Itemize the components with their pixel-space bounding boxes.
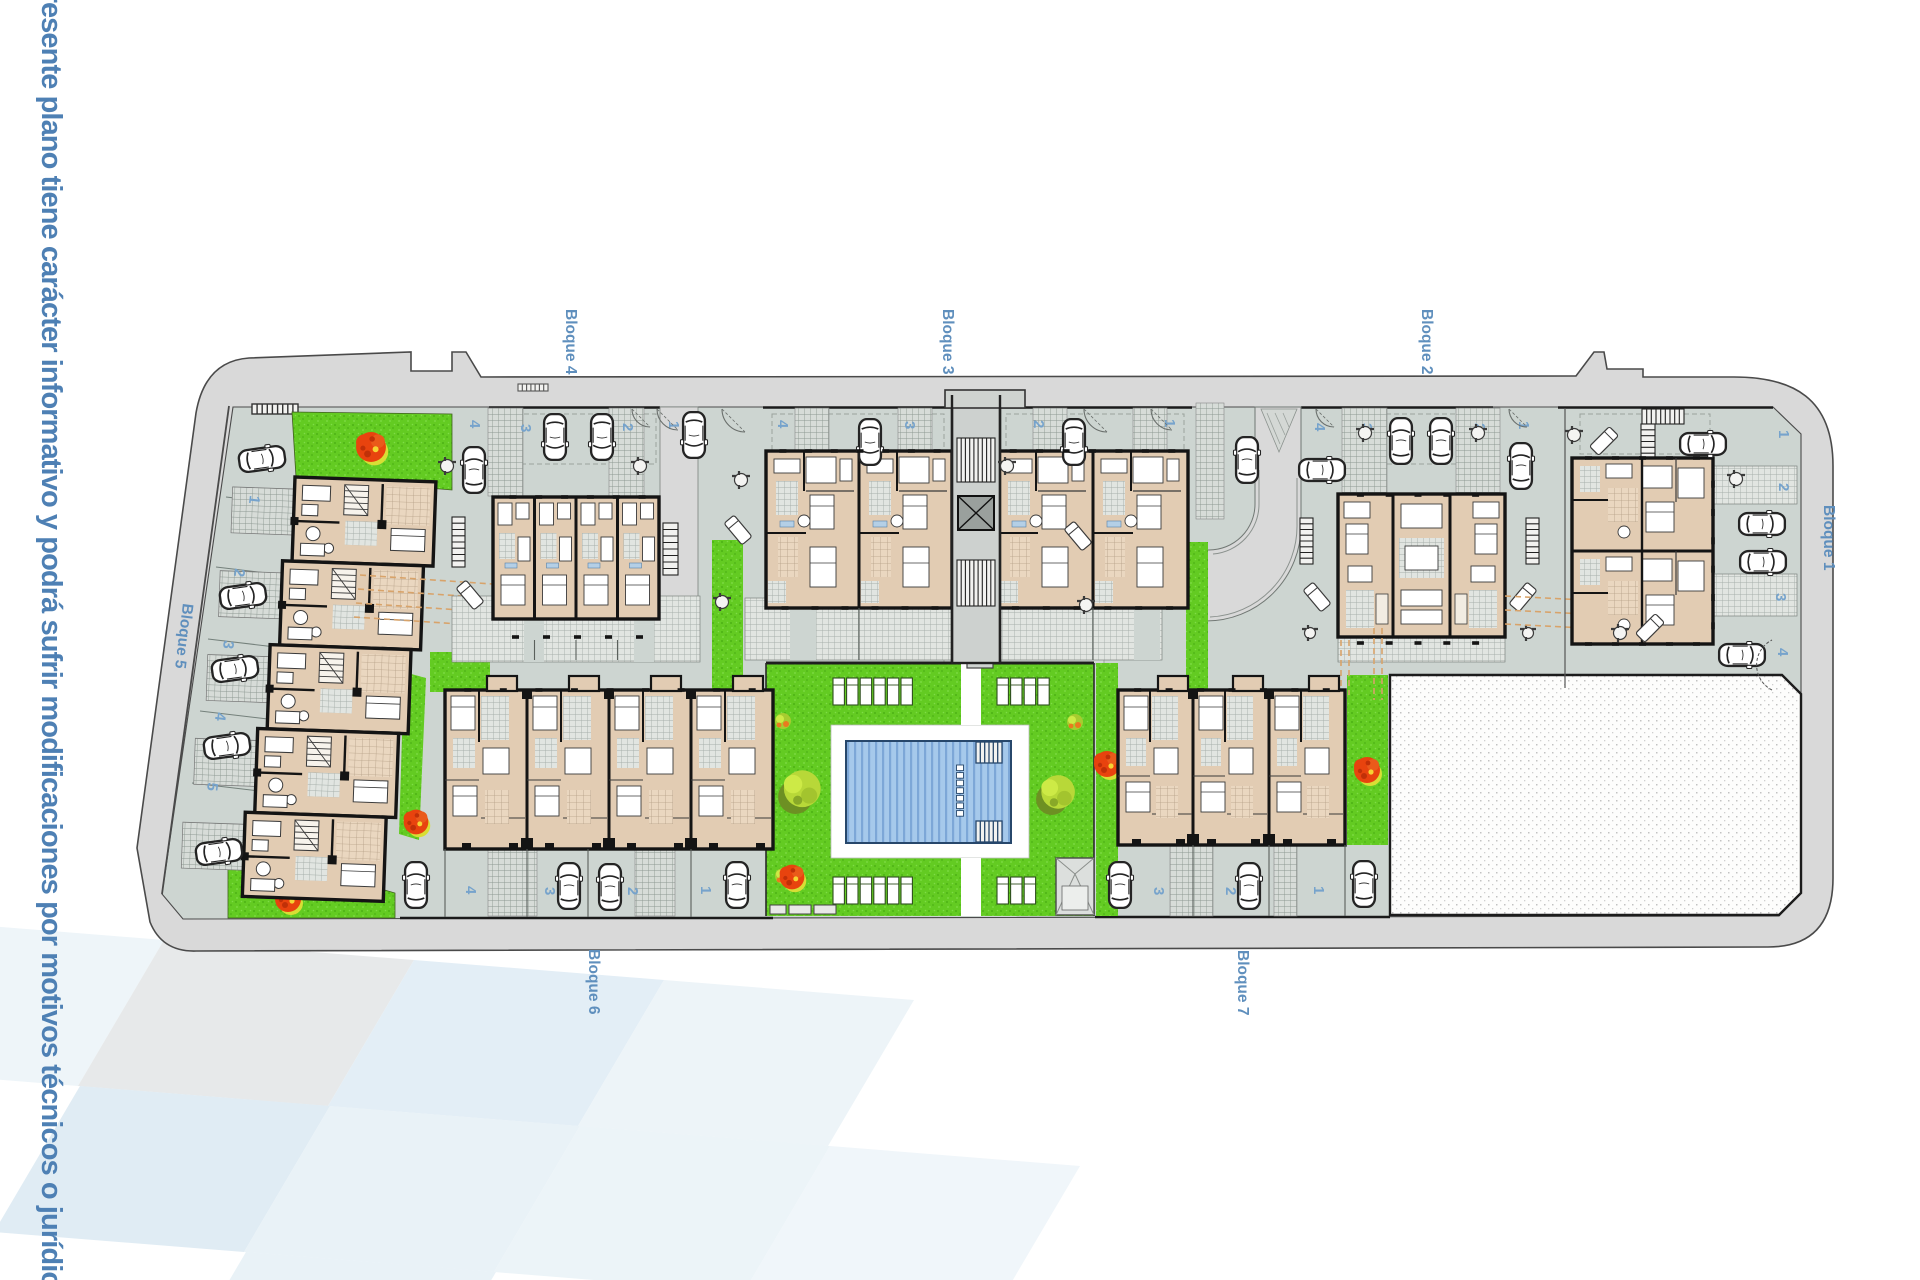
svg-text:2: 2 xyxy=(619,423,636,431)
svg-text:3: 3 xyxy=(517,424,534,432)
svg-text:4: 4 xyxy=(774,420,791,429)
svg-text:4: 4 xyxy=(1774,648,1791,657)
svg-text:4: 4 xyxy=(466,420,483,429)
svg-text:3: 3 xyxy=(1150,887,1167,895)
svg-text:1: 1 xyxy=(1161,419,1178,427)
svg-text:3: 3 xyxy=(901,421,918,429)
svg-text:Bloque 3: Bloque 3 xyxy=(939,309,956,375)
svg-text:El presente plano tiene caráct: El presente plano tiene carácter informa… xyxy=(35,0,67,1280)
svg-text:2: 2 xyxy=(1222,887,1239,895)
svg-text:2: 2 xyxy=(1030,420,1047,428)
svg-text:1: 1 xyxy=(1310,886,1327,894)
svg-text:3: 3 xyxy=(541,887,558,895)
svg-text:1: 1 xyxy=(1775,430,1792,438)
svg-text:Bloque 2: Bloque 2 xyxy=(1418,309,1435,374)
svg-text:2: 2 xyxy=(1775,483,1792,491)
svg-text:1: 1 xyxy=(697,886,714,894)
svg-text:Bloque 6: Bloque 6 xyxy=(585,949,602,1015)
svg-text:1: 1 xyxy=(1515,421,1532,429)
svg-text:3: 3 xyxy=(1772,593,1789,601)
svg-text:4: 4 xyxy=(462,886,479,895)
svg-text:1: 1 xyxy=(665,421,682,429)
svg-text:Bloque 7: Bloque 7 xyxy=(1234,950,1251,1015)
svg-text:2: 2 xyxy=(624,887,641,895)
svg-text:Bloque 1: Bloque 1 xyxy=(1820,505,1837,571)
svg-text:Bloque 4: Bloque 4 xyxy=(562,309,579,375)
